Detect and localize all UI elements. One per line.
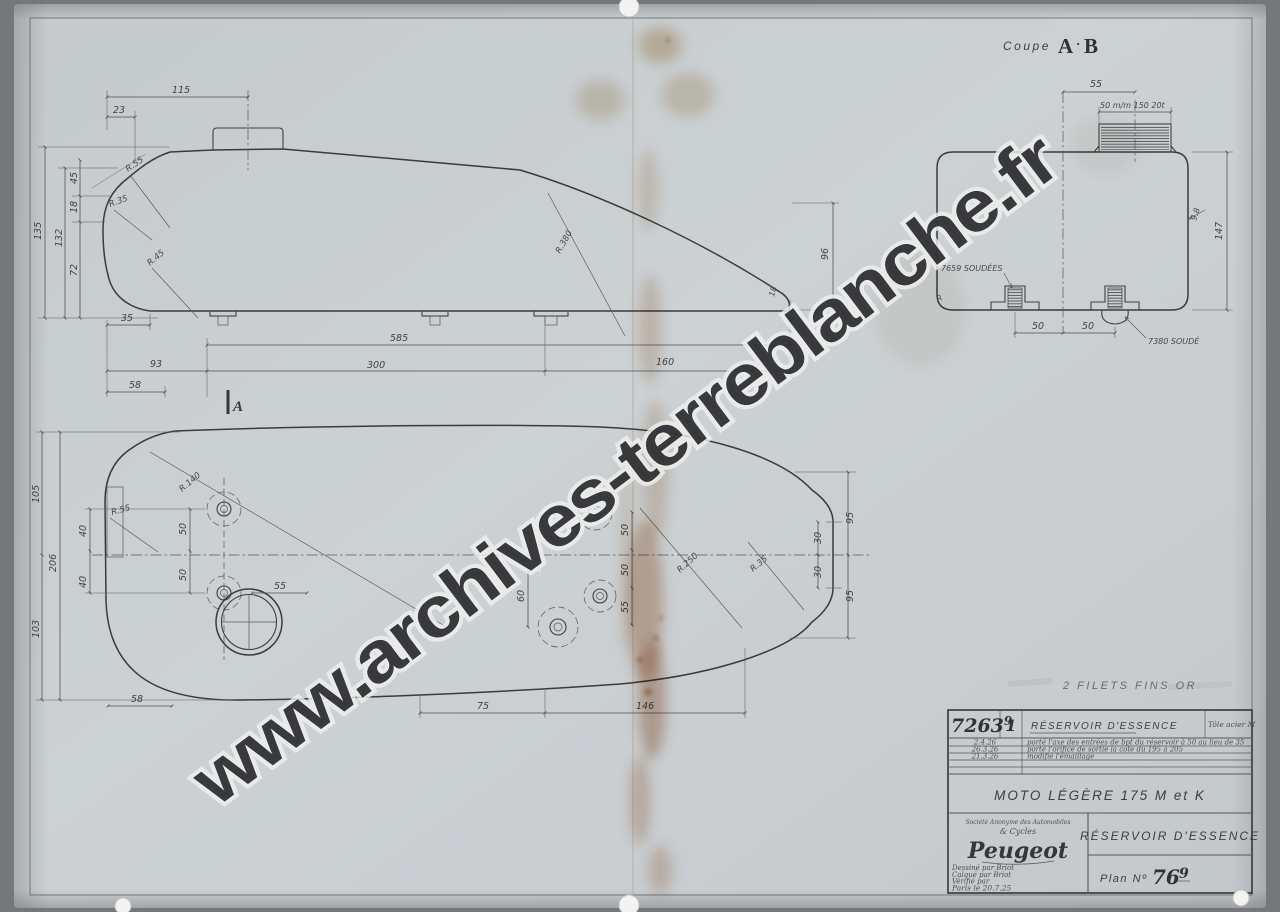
dim-95b: 95 <box>845 590 856 602</box>
dim-50-boss-b: 50 <box>1082 321 1094 332</box>
plan-number: 76 <box>1152 865 1180 889</box>
punch-hole-bottom <box>619 895 639 912</box>
dim-40b: 40 <box>78 576 89 588</box>
dim-55-neck: 55 <box>1090 79 1102 90</box>
dim-55: 55 <box>274 581 286 592</box>
coupe-label: Coupe <box>1003 39 1051 53</box>
dim-30b: 30 <box>813 566 824 578</box>
punch-hole-bottom-right <box>1233 890 1249 906</box>
company-line2: & Cycles <box>1000 827 1036 836</box>
drawing-number: 72639 <box>951 714 1013 737</box>
dim-585: 585 <box>390 333 408 344</box>
section-label-a: A <box>232 399 243 415</box>
paper-edge-left <box>14 4 48 908</box>
dim-93: 93 <box>150 359 162 370</box>
dim-206: 206 <box>48 554 59 572</box>
dim-50-boss-a: 50 <box>1032 321 1044 332</box>
coupe-b: B <box>1084 34 1098 58</box>
part-title: RÉSERVOIR D'ESSENCE <box>1080 828 1260 843</box>
punch-hole-top <box>619 0 639 17</box>
dim-50b: 50 <box>178 569 189 581</box>
revision-date: 21.3.26 <box>971 753 999 761</box>
dim-40a: 40 <box>78 525 89 537</box>
dim-58: 58 <box>131 694 143 705</box>
place-date: Paris le 20.7.25 <box>951 884 1011 893</box>
dim-103: 103 <box>31 620 42 638</box>
dim-58s: 58 <box>129 380 141 391</box>
dim-75: 75 <box>477 701 489 712</box>
paper-edge-right <box>1232 4 1266 908</box>
punch-hole-bottom-left <box>115 898 131 912</box>
part-name-header: RÉSERVOIR D'ESSENCE <box>1031 719 1178 732</box>
pencil-smudge-left <box>1008 681 1052 684</box>
dim-135: 135 <box>33 222 44 240</box>
paper-edge-top <box>14 4 1266 20</box>
model-name: MOTO LÉGÈRE 175 M et K <box>994 788 1206 803</box>
dim-96: 96 <box>820 248 831 260</box>
dim-300: 300 <box>367 360 385 371</box>
dim-132: 132 <box>54 229 65 247</box>
company-logo: Peugeot <box>967 838 1068 864</box>
material-spec: Tôle acier M <box>1208 720 1256 729</box>
blueprint-canvas: 115 23 135 132 45 18 72 35 R.55 R.35 R.4… <box>0 0 1280 912</box>
dim-30a: 30 <box>813 532 824 544</box>
dim-95a: 95 <box>845 512 856 524</box>
thread-spec: 50 m/m 150 20t <box>1100 101 1166 110</box>
company-line1: Société Anonyme des Automobiles <box>966 819 1071 826</box>
coupe-a: A <box>1058 34 1074 58</box>
dim-23: 23 <box>113 105 125 116</box>
dim-18: 18 <box>69 201 80 213</box>
sheet-index: 1 <box>1005 716 1016 735</box>
dim-35: 35 <box>121 313 133 324</box>
note-filets: 2 FILETS FINS OR <box>1062 680 1197 692</box>
weld-label-right: 7380 SOUDÉ <box>1148 335 1200 346</box>
dim-45: 45 <box>69 172 80 184</box>
dim-105: 105 <box>31 485 42 503</box>
plan-label: Plan Nº <box>1100 873 1148 885</box>
revision-note: modifié l'émaillage <box>1027 753 1094 761</box>
dim-147: 147 <box>1214 222 1225 240</box>
dim-115: 115 <box>172 85 190 96</box>
coupe-sep: · <box>1076 36 1080 51</box>
dim-72: 72 <box>69 264 80 276</box>
dim-50a: 50 <box>178 523 189 535</box>
plan-number-sup: 9 <box>1179 866 1189 882</box>
